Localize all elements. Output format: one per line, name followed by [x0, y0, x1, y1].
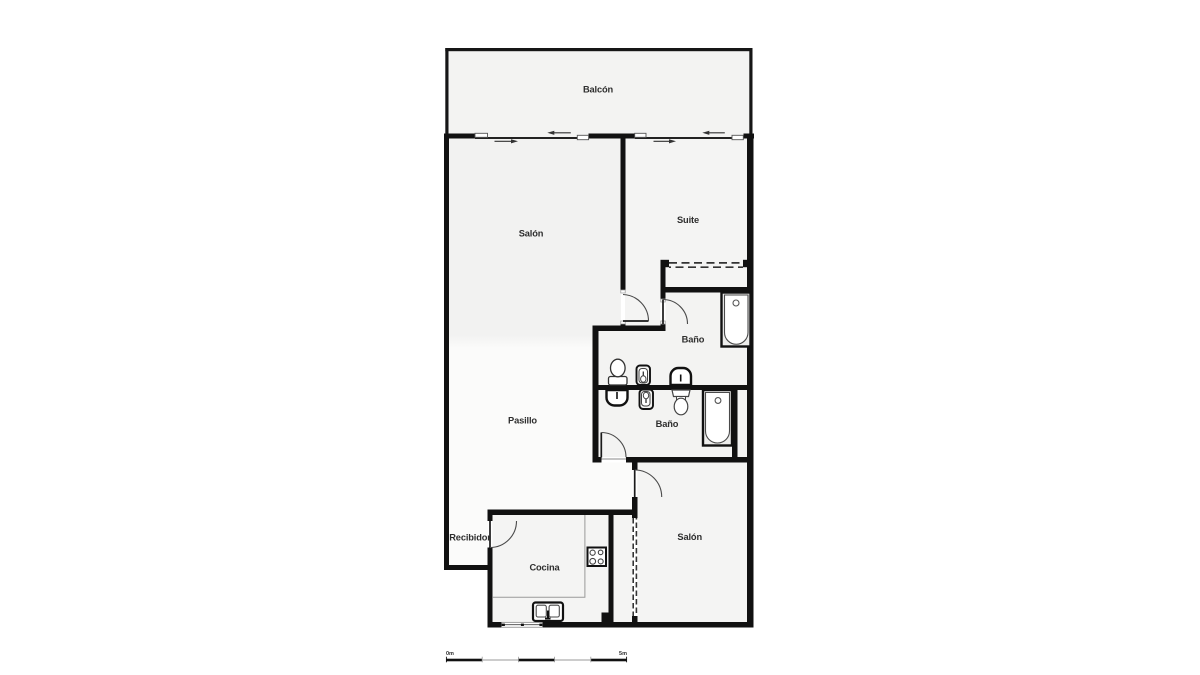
svg-text:Cocina: Cocina — [529, 563, 560, 573]
svg-text:Pasillo: Pasillo — [508, 416, 537, 426]
svg-text:Balcón: Balcón — [583, 85, 614, 95]
svg-text:Salón: Salón — [677, 532, 702, 542]
svg-text:5m: 5m — [619, 651, 627, 657]
svg-text:Baño: Baño — [656, 419, 679, 429]
svg-text:Suite: Suite — [677, 215, 699, 225]
svg-text:Baño: Baño — [682, 335, 705, 345]
svg-text:Salón: Salón — [519, 229, 544, 239]
svg-text:0m: 0m — [446, 651, 454, 657]
svg-text:Recibidor: Recibidor — [449, 533, 491, 543]
